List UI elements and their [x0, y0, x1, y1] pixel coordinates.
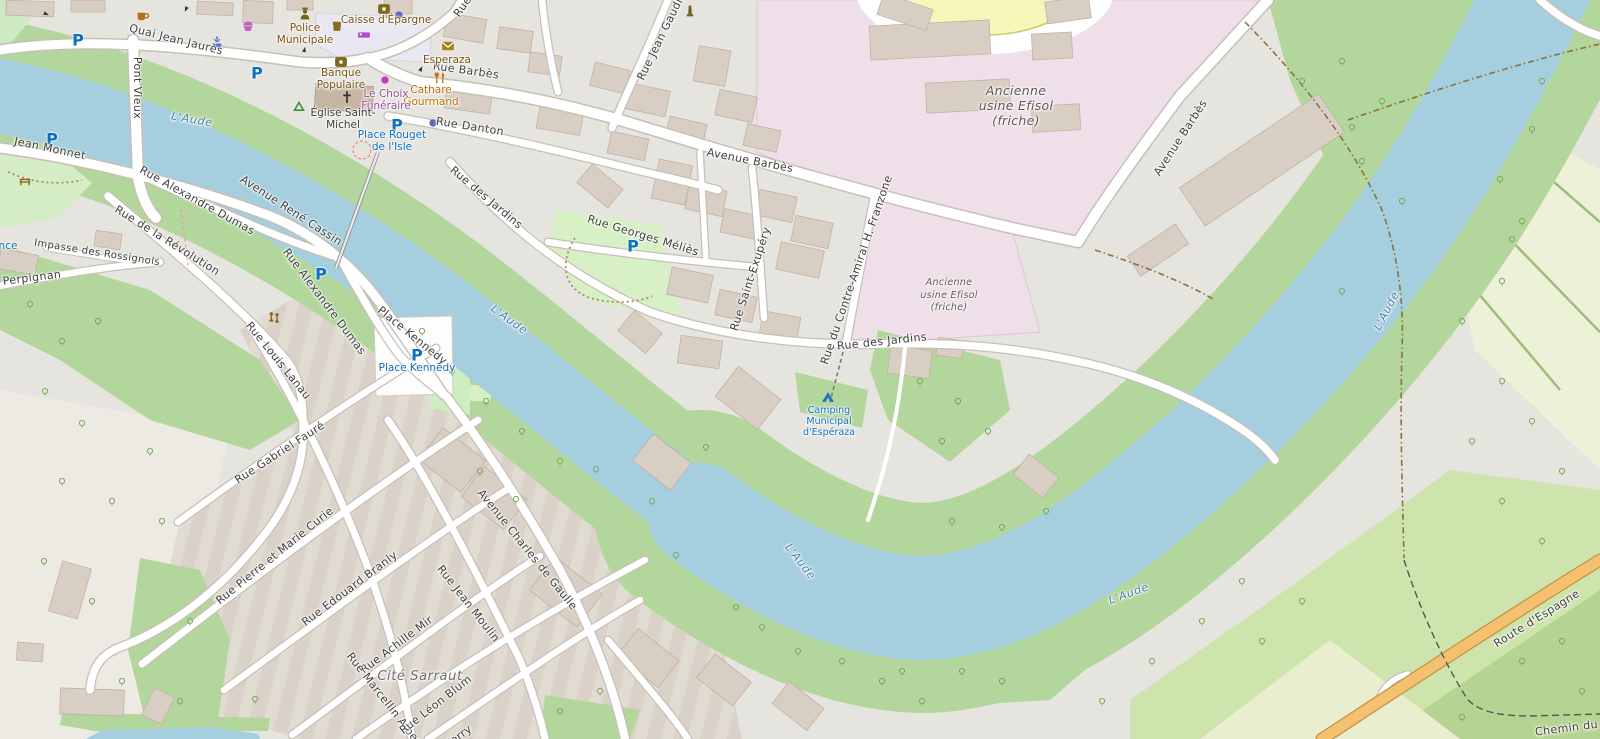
map-canvas [0, 0, 1600, 739]
map-viewport[interactable]: PPPPPPP Quai Jean JaurèsPont VieuxJean M… [0, 0, 1600, 739]
